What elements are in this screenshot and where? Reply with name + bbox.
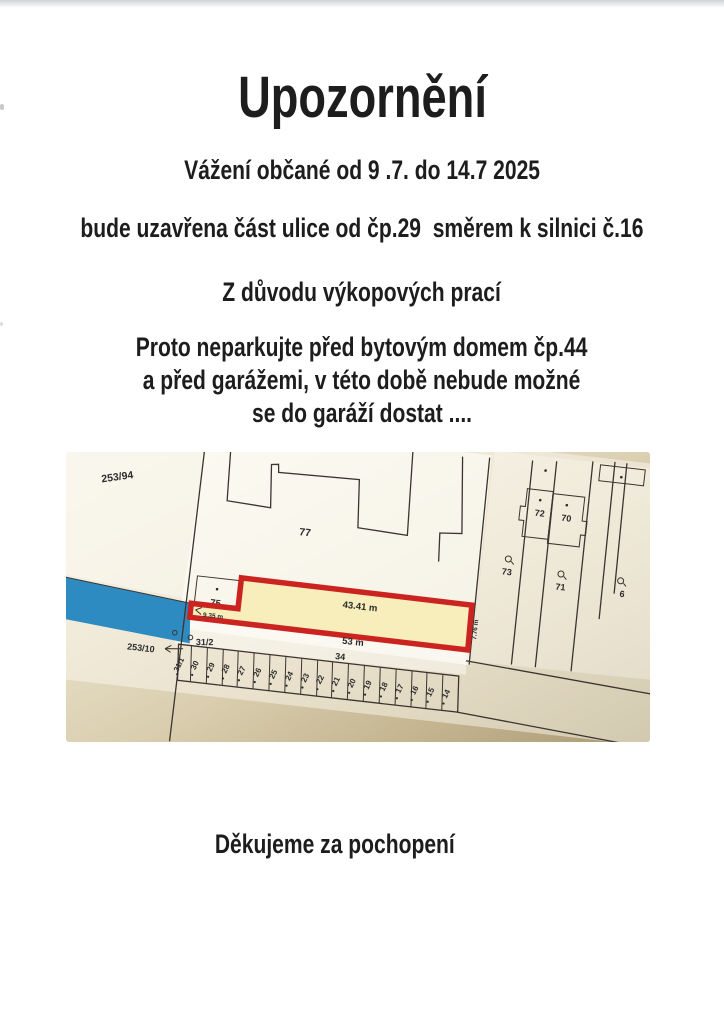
thanks-note: Děkujeme za pochopení — [0, 828, 724, 862]
notice-title: Upozornění — [0, 62, 724, 135]
notice-paragraph: Proto neparkujte před bytovým domem čp.4… — [0, 331, 724, 430]
parcel-label-73: 73 — [501, 566, 512, 577]
notice-page: Upozornění Vážení občané od 9 .7. do 14.… — [0, 0, 724, 1024]
notice-paragraph-line-1: Proto neparkujte před bytovým domem čp.4… — [0, 331, 724, 364]
notice-line-reason: Z důvodu výkopových prací — [0, 276, 724, 310]
cadastral-map: 77 253/94 72 70 — [66, 452, 650, 742]
notice-paragraph-line-2: a před garážemi, v této době nebude možn… — [0, 364, 724, 397]
parcel-label-70: 70 — [561, 513, 572, 524]
parcel-label-31-2: 31/2 — [196, 637, 214, 647]
notice-paragraph-line-3: se do garáží dostat .... — [0, 397, 724, 430]
parcel-label-72: 72 — [534, 508, 545, 519]
parcel-label-71: 71 — [555, 582, 566, 593]
cadastral-map-svg: 77 253/94 72 70 — [66, 452, 650, 742]
scan-speck — [0, 322, 3, 326]
notice-line-closure: bude uzavřena část ulice od čp.29 směrem… — [0, 212, 724, 246]
parcel-label-34: 34 — [335, 651, 346, 662]
scan-edge-artifact — [0, 0, 724, 8]
right-parcels-area — [471, 452, 650, 682]
notice-line-dates: Vážení občané od 9 .7. do 14.7 2025 — [0, 154, 724, 188]
parcel-label-77: 77 — [299, 526, 312, 539]
map-photo: 77 253/94 72 70 — [66, 452, 650, 742]
notice-title-text: Upozornění — [238, 62, 487, 135]
